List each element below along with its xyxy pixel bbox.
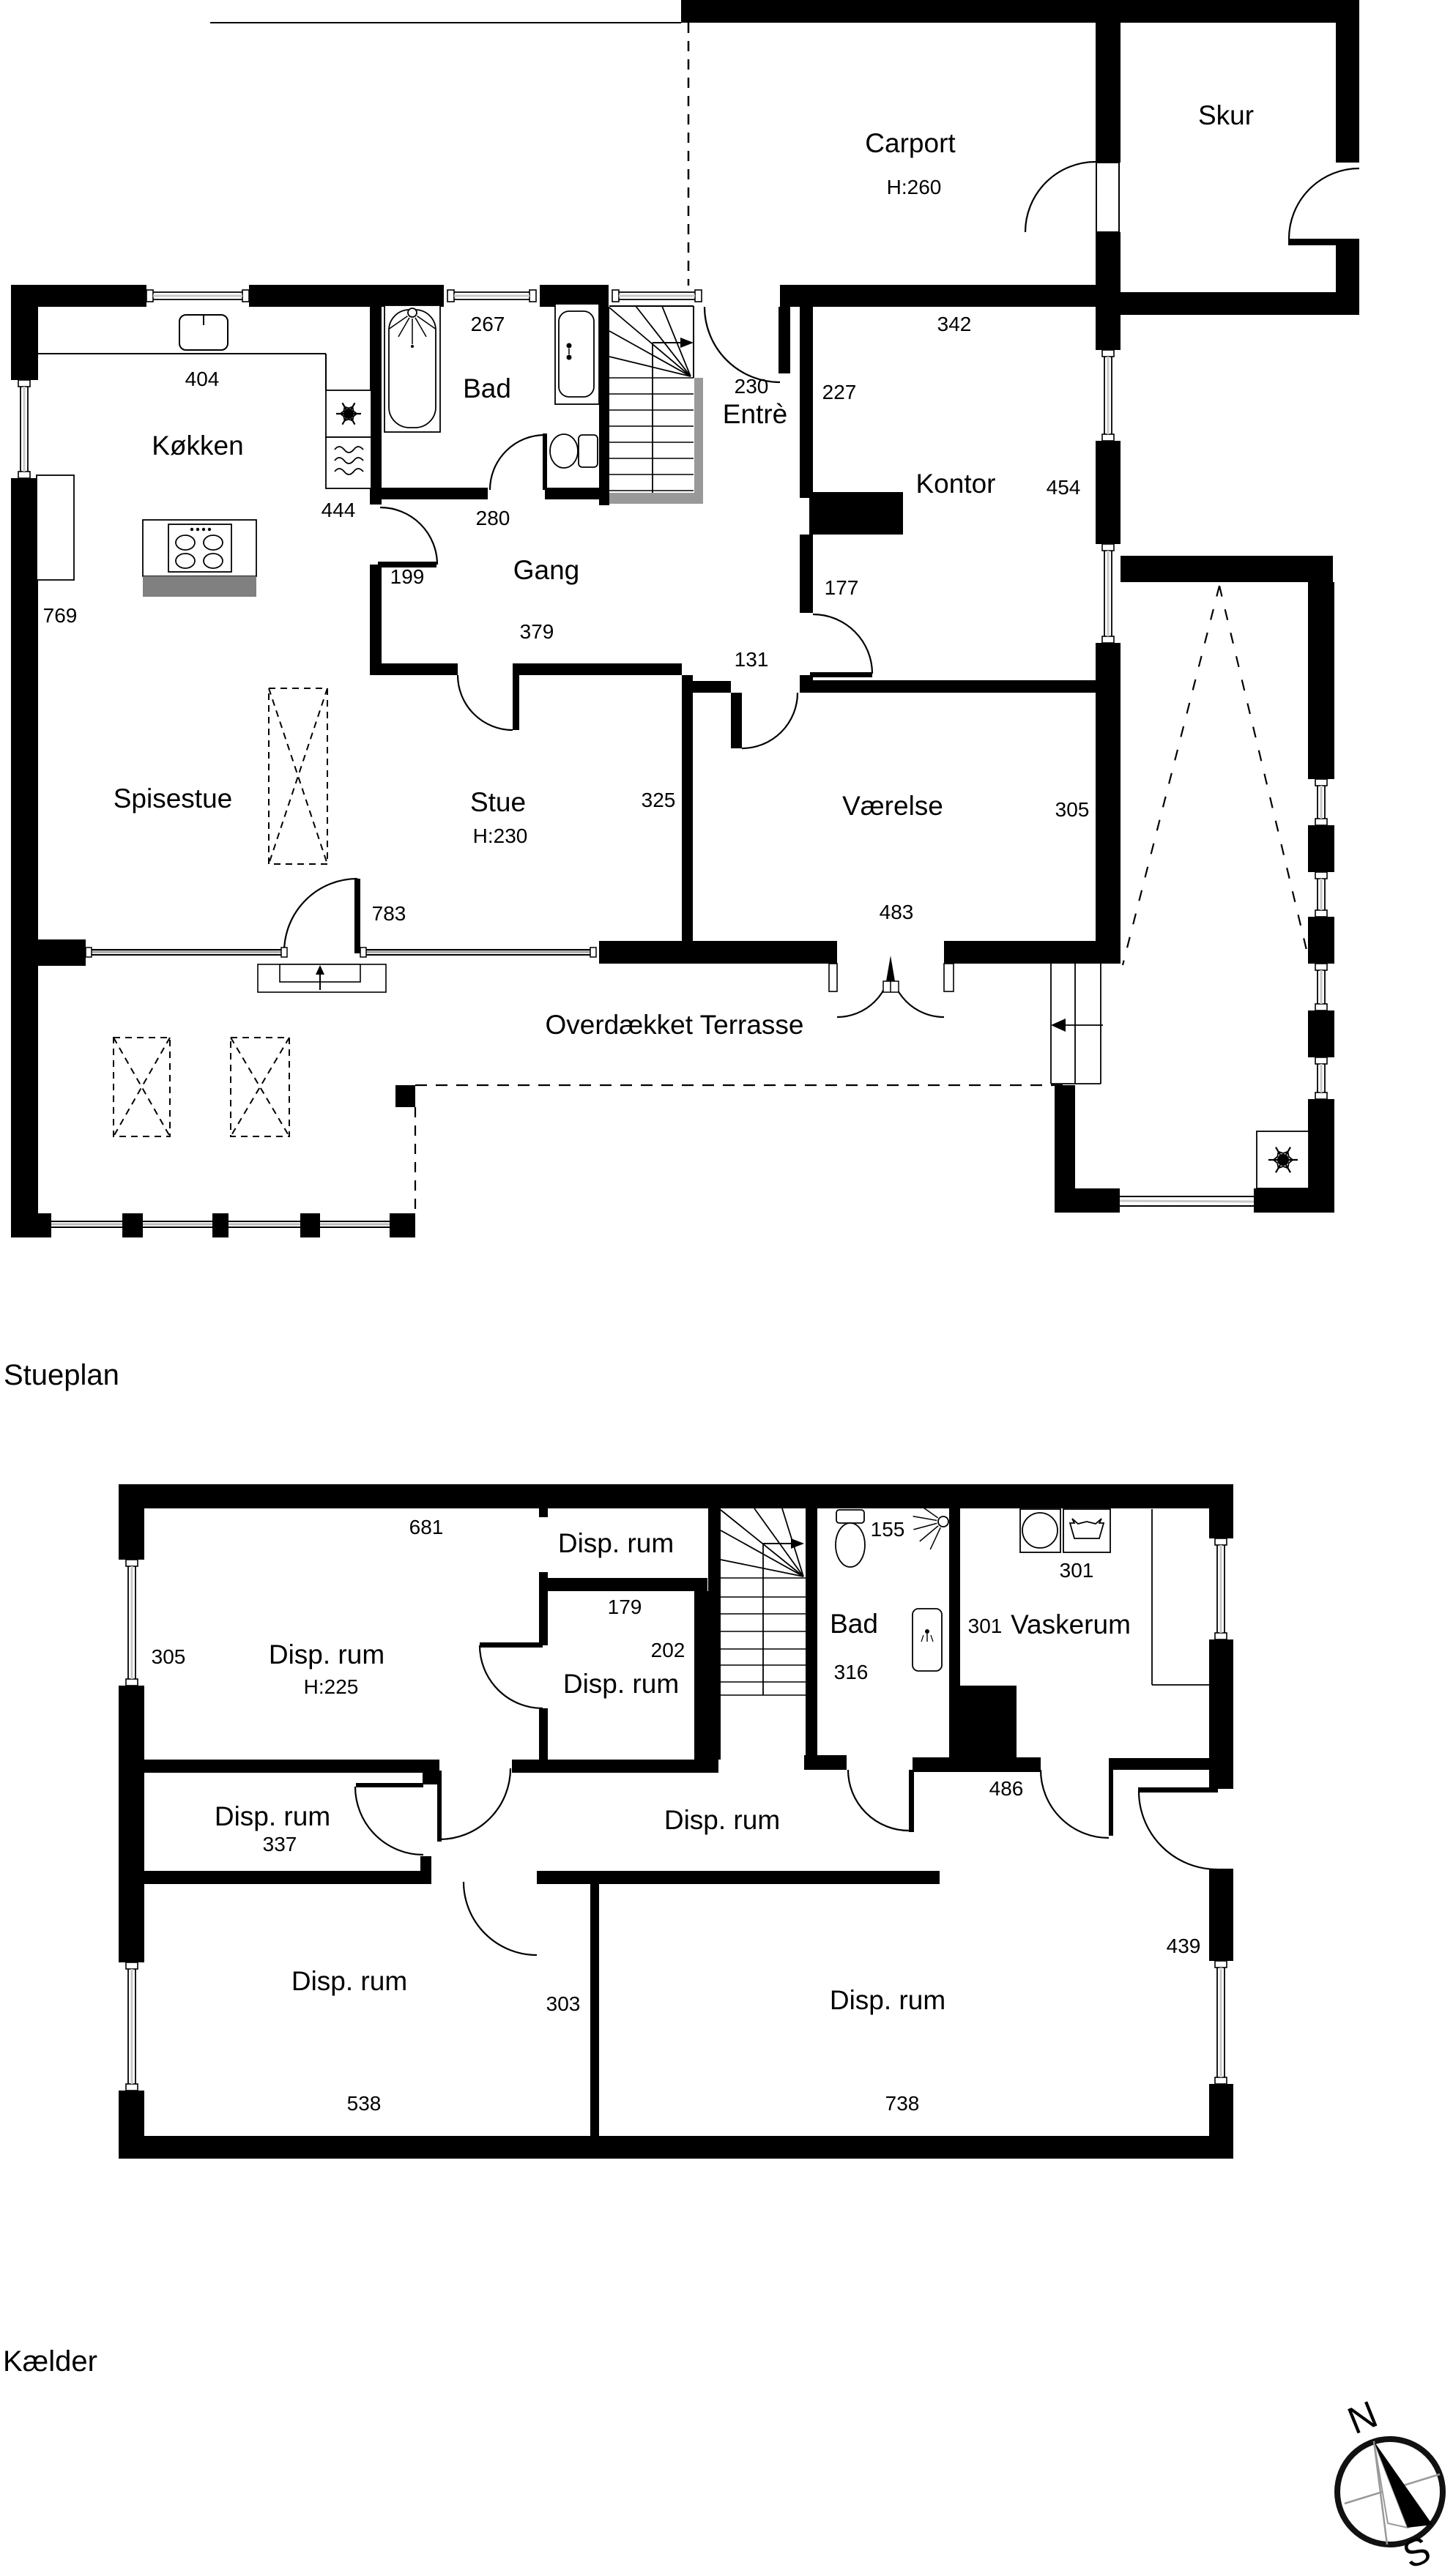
- svg-text:Disp. rum: Disp. rum: [830, 1985, 945, 2015]
- svg-text:Disp. rum: Disp. rum: [215, 1801, 330, 1831]
- svg-text:Bad: Bad: [463, 373, 511, 403]
- svg-text:769: 769: [43, 604, 78, 627]
- svg-text:H:260: H:260: [887, 176, 942, 198]
- svg-text:Gang: Gang: [513, 555, 580, 585]
- svg-text:Overdækket Terrasse: Overdækket Terrasse: [546, 1010, 804, 1040]
- svg-text:486: 486: [989, 1777, 1024, 1800]
- svg-text:Skur: Skur: [1198, 100, 1254, 130]
- svg-text:280: 280: [476, 507, 510, 529]
- svg-text:305: 305: [152, 1645, 186, 1668]
- svg-text:177: 177: [825, 576, 859, 599]
- svg-text:Vaskerum: Vaskerum: [1011, 1609, 1131, 1639]
- svg-text:305: 305: [1055, 798, 1090, 821]
- svg-text:267: 267: [471, 313, 505, 335]
- svg-text:Disp. rum: Disp. rum: [563, 1669, 679, 1699]
- svg-text:538: 538: [347, 2092, 382, 2115]
- svg-text:H:230: H:230: [473, 824, 528, 847]
- svg-text:325: 325: [642, 789, 676, 811]
- svg-text:439: 439: [1167, 1935, 1201, 1957]
- svg-text:Kontor: Kontor: [915, 469, 995, 499]
- svg-text:783: 783: [372, 902, 406, 925]
- svg-text:Disp. rum: Disp. rum: [664, 1805, 780, 1835]
- svg-text:H:225: H:225: [304, 1675, 359, 1698]
- svg-text:199: 199: [390, 565, 425, 588]
- svg-text:Disp. rum: Disp. rum: [269, 1639, 384, 1669]
- svg-text:Kælder: Kælder: [3, 2345, 97, 2378]
- svg-text:454: 454: [1047, 476, 1081, 499]
- svg-text:Stueplan: Stueplan: [4, 1359, 119, 1391]
- svg-text:681: 681: [409, 1516, 444, 1538]
- svg-text:230: 230: [735, 375, 769, 398]
- svg-text:316: 316: [834, 1661, 869, 1683]
- svg-text:444: 444: [322, 499, 356, 521]
- svg-text:155: 155: [871, 1518, 905, 1541]
- svg-text:227: 227: [822, 381, 857, 403]
- svg-text:Disp. rum: Disp. rum: [291, 1966, 407, 1996]
- svg-text:337: 337: [263, 1833, 297, 1855]
- svg-text:Disp. rum: Disp. rum: [558, 1528, 674, 1558]
- svg-text:Spisestue: Spisestue: [114, 783, 233, 814]
- svg-text:202: 202: [651, 1639, 685, 1661]
- svg-text:303: 303: [546, 1992, 581, 2015]
- svg-text:483: 483: [880, 901, 914, 923]
- svg-text:404: 404: [185, 368, 220, 390]
- svg-text:Stue: Stue: [470, 787, 526, 817]
- svg-text:301: 301: [1060, 1559, 1094, 1582]
- svg-text:Værelse: Værelse: [842, 791, 943, 821]
- svg-text:342: 342: [937, 313, 972, 335]
- svg-text:179: 179: [608, 1596, 642, 1618]
- svg-text:301: 301: [968, 1615, 1003, 1637]
- svg-text:Bad: Bad: [830, 1609, 878, 1639]
- svg-text:738: 738: [885, 2092, 920, 2115]
- svg-text:Carport: Carport: [865, 128, 956, 158]
- svg-text:379: 379: [520, 620, 554, 643]
- svg-text:Entrè: Entrè: [723, 399, 787, 429]
- svg-text:131: 131: [735, 648, 769, 671]
- svg-text:Køkken: Køkken: [152, 431, 243, 461]
